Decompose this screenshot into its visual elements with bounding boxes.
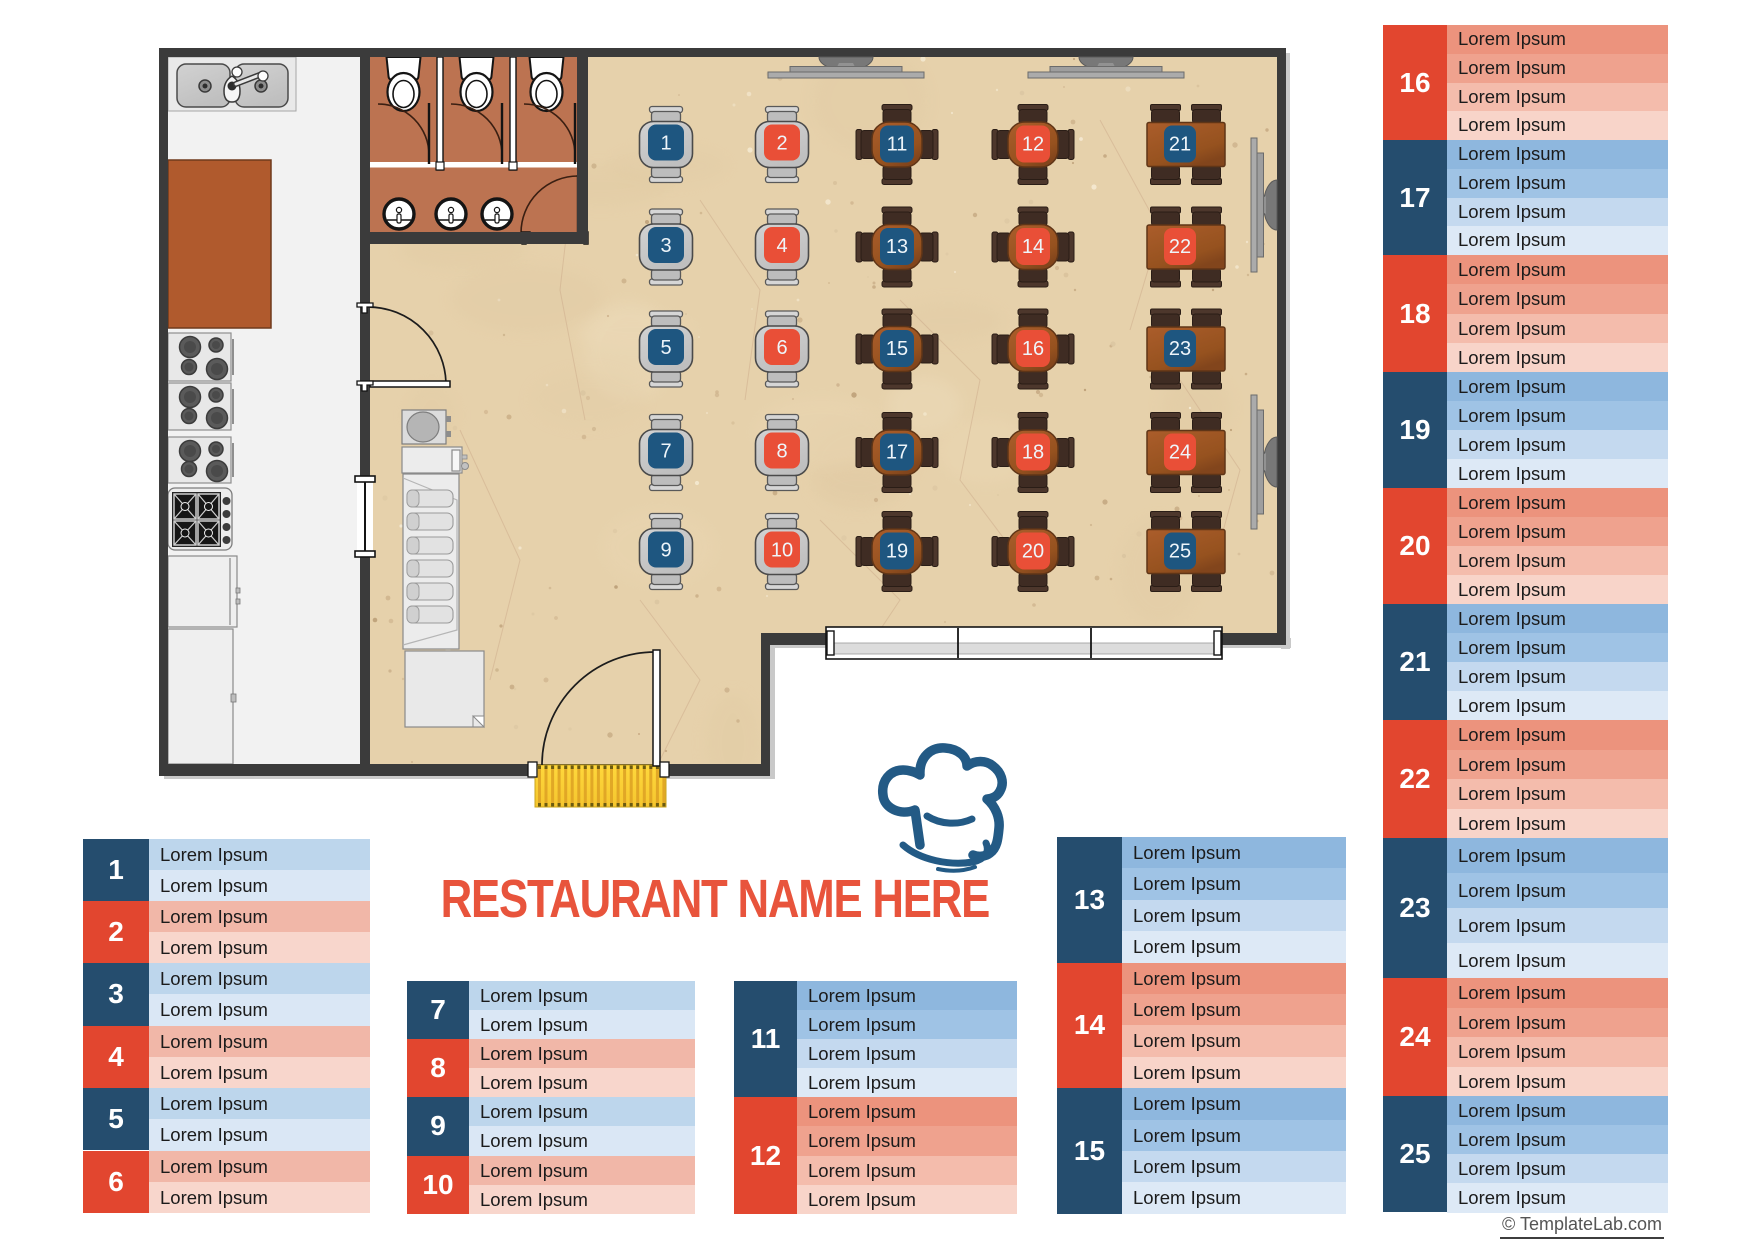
svg-text:8: 8	[776, 441, 787, 463]
svg-text:23: 23	[1169, 338, 1191, 360]
svg-text:1: 1	[660, 133, 671, 155]
svg-text:20: 20	[1022, 541, 1044, 563]
svg-text:12: 12	[1022, 134, 1044, 156]
svg-text:17: 17	[886, 442, 908, 464]
svg-text:24: 24	[1169, 442, 1191, 464]
svg-text:22: 22	[1169, 236, 1191, 258]
svg-text:14: 14	[1022, 236, 1044, 258]
svg-text:18: 18	[1022, 442, 1044, 464]
svg-text:15: 15	[886, 338, 908, 360]
svg-text:11: 11	[887, 134, 908, 156]
svg-text:21: 21	[1169, 134, 1191, 156]
svg-text:25: 25	[1169, 541, 1191, 563]
svg-text:5: 5	[660, 337, 671, 359]
svg-text:13: 13	[886, 236, 908, 258]
svg-text:19: 19	[886, 541, 908, 563]
svg-text:3: 3	[660, 235, 671, 257]
svg-text:16: 16	[1022, 338, 1044, 360]
svg-text:7: 7	[660, 441, 671, 463]
svg-text:6: 6	[776, 337, 787, 359]
svg-text:4: 4	[776, 235, 787, 257]
svg-text:2: 2	[776, 133, 787, 155]
svg-text:10: 10	[771, 540, 793, 562]
svg-text:9: 9	[660, 540, 671, 562]
